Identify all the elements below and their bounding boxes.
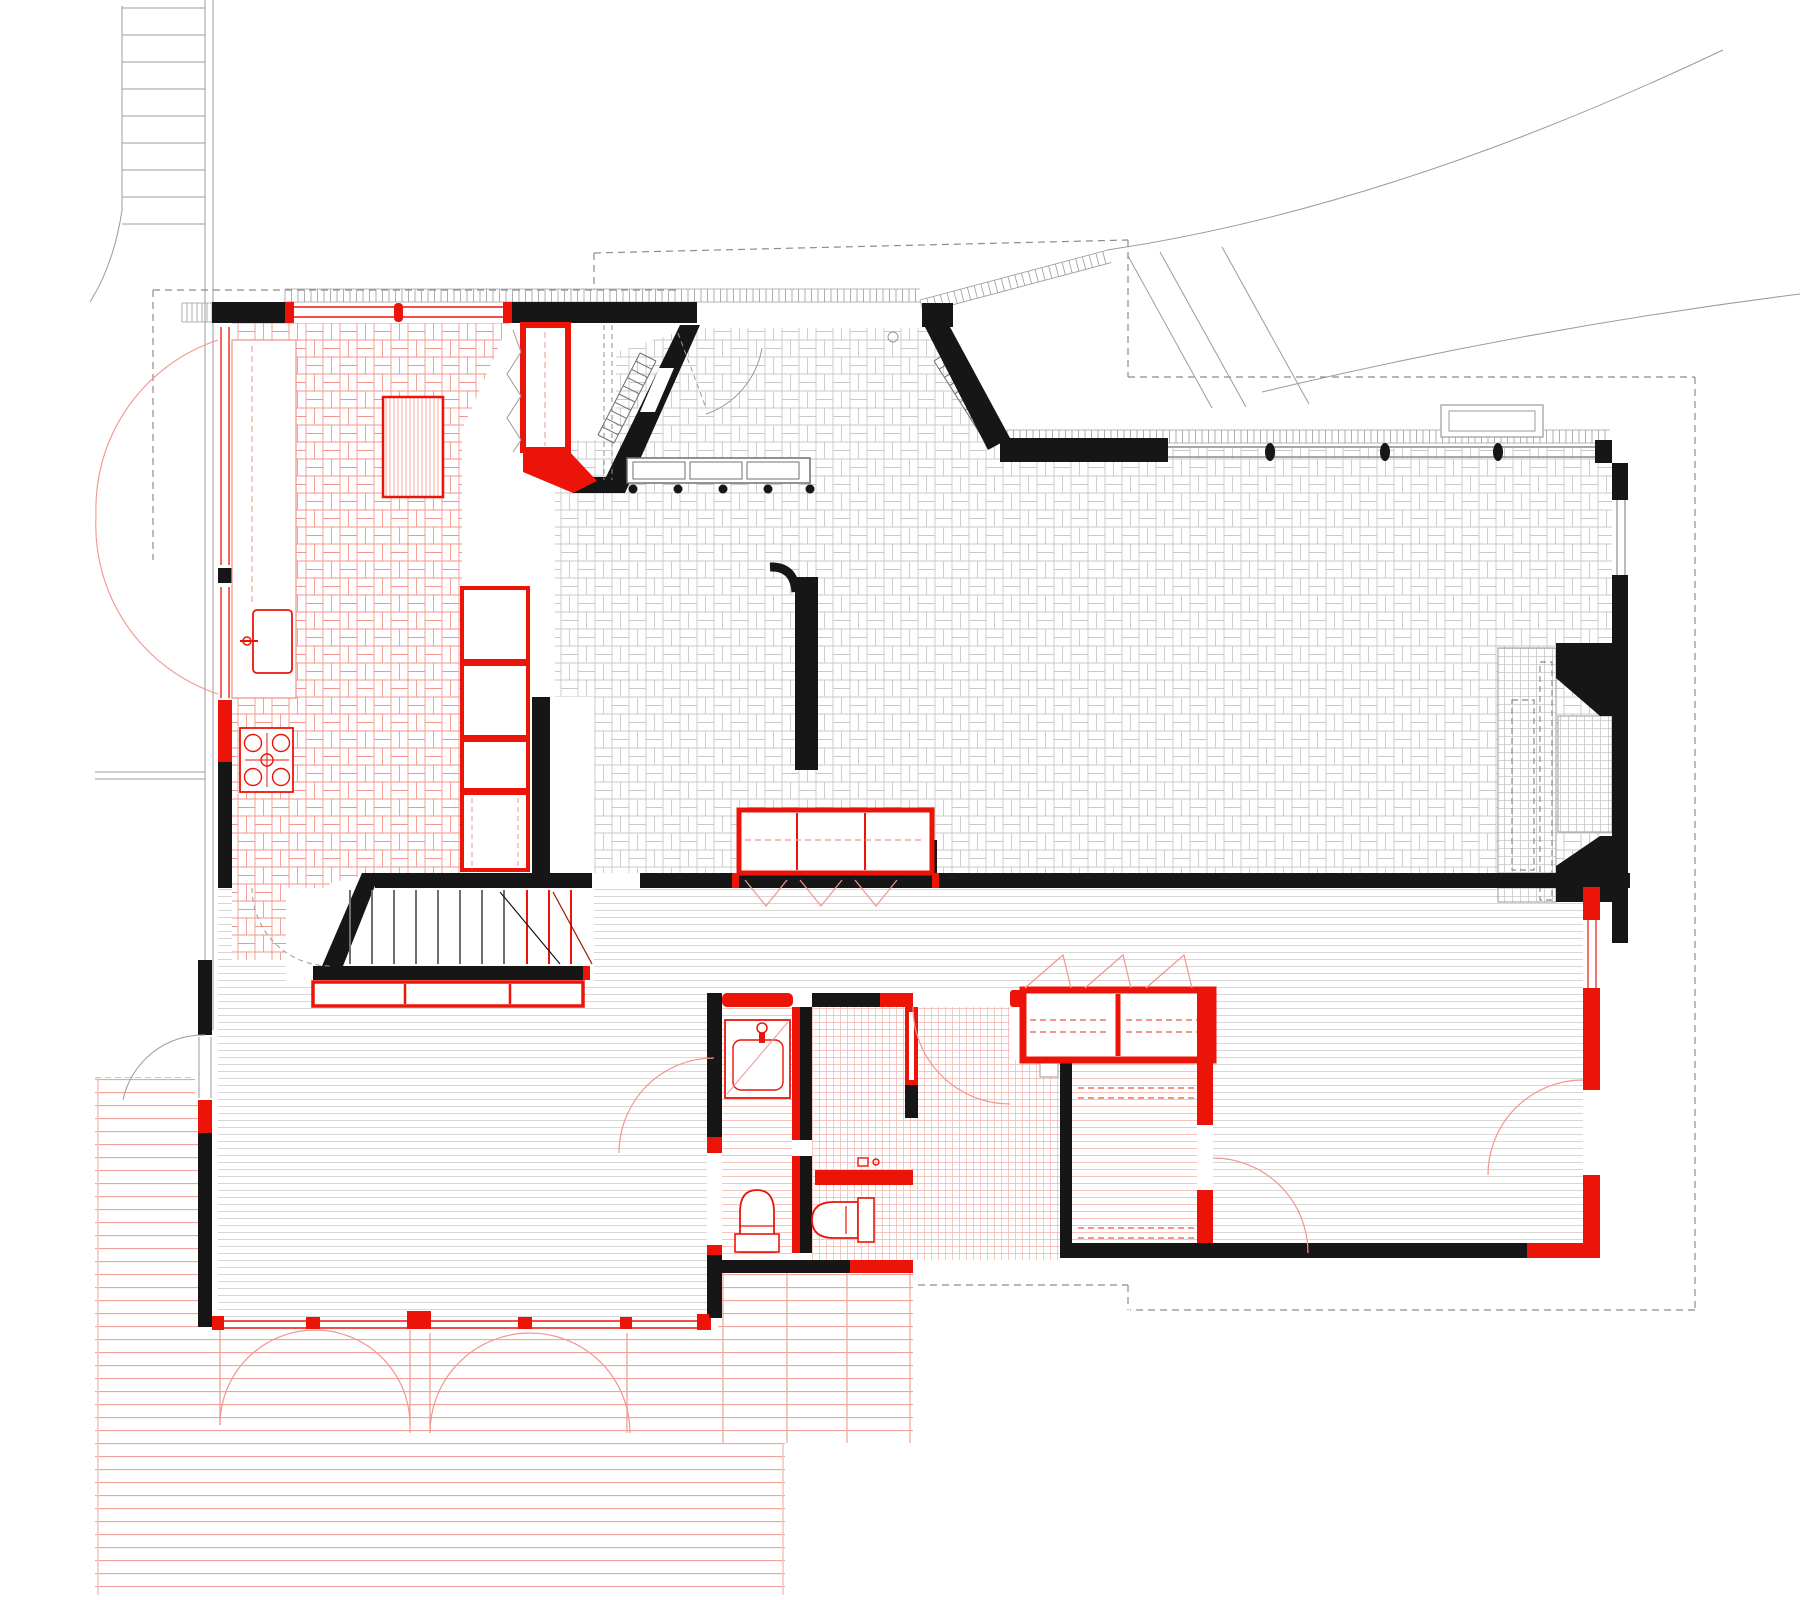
walkway-tick-band [1015, 275, 1018, 288]
kitchen-window-mullion [394, 303, 403, 322]
door-gap-mask [707, 1153, 722, 1245]
walkway-tick-band [1069, 260, 1072, 273]
wall-east-mid [1612, 575, 1628, 643]
kitchen-tall-cabinet [462, 664, 528, 737]
wall-bath-south [713, 1260, 850, 1273]
door-swing-red [96, 516, 218, 694]
deck-post [306, 1317, 320, 1329]
window-jamb-red [285, 302, 294, 323]
walkway-tick-band [1096, 253, 1099, 266]
wall-east-bedroom-red [1583, 887, 1600, 920]
entry-steps-ladder [602, 427, 618, 435]
wall-bedroom-south [1060, 1243, 1527, 1258]
kitchen-island [383, 397, 443, 497]
kitchen-tall-cabinet [462, 740, 528, 790]
walkway-tick-band [994, 280, 997, 293]
site-driveway-curve [1107, 50, 1723, 250]
deck-post [518, 1317, 532, 1329]
stair-bench [313, 982, 583, 1006]
hall-cabinet [739, 810, 932, 873]
wall-east-lower [1612, 643, 1628, 943]
wall-closet-east-red [1197, 990, 1213, 1125]
wall-bath-north [812, 993, 880, 1007]
wall-kitchen-divider [532, 697, 550, 873]
site-path-curve [90, 210, 122, 302]
wall-east-bedroom-red [1583, 1175, 1600, 1258]
wall-powder-west-red [707, 1245, 722, 1255]
site-path-line [1222, 247, 1309, 404]
walkway-tick-band [967, 287, 970, 300]
wall-west-lower [198, 960, 212, 1035]
wall-west-black [218, 568, 232, 583]
wall-bath-east [1060, 1057, 1072, 1257]
wall-bath-south-red [850, 1260, 913, 1273]
plan-layer [90, 0, 1800, 1595]
wall-west-lower-red [198, 1100, 212, 1133]
fireplace-flue-tiles [1558, 716, 1612, 832]
walkway-tick-band [1021, 273, 1024, 286]
walkway-tick-band [1028, 271, 1031, 284]
kitchen-tall-cabinet [462, 793, 528, 870]
wall-entry-corner [922, 303, 953, 327]
bath-vanity-shelf [815, 1170, 913, 1185]
walkway-tick-band [974, 286, 977, 299]
walkway-tick-band [920, 250, 1108, 300]
wall-living-south [375, 873, 592, 888]
wall-powder-west-red [707, 1137, 722, 1153]
floor-plan [0, 0, 1800, 1600]
powder-toilet-cistern [735, 1234, 779, 1252]
wall-west-black [218, 762, 232, 888]
bath-toilet [812, 1202, 858, 1238]
break-line [507, 330, 521, 452]
wall-bath-north-red [880, 993, 913, 1007]
bench-foot [674, 485, 683, 494]
wall-living-spine [795, 577, 818, 770]
walkway-tick-band [1042, 268, 1045, 281]
site-path-line [1128, 256, 1212, 408]
bath-toilet-cistern [858, 1198, 874, 1242]
site-path-line [1160, 252, 1246, 407]
walkway-tick-band [988, 282, 991, 295]
wing-window-mullion [1380, 443, 1390, 461]
deck-post [697, 1314, 709, 1330]
window-jamb-black [1595, 440, 1612, 463]
fireplace-hearth-tiles [1498, 648, 1556, 902]
wall-bath-divider [800, 1007, 812, 1253]
kitchen-tall-cabinet [462, 588, 528, 661]
wall-kitchen-north [503, 302, 697, 323]
wall-east-bedroom-red [1583, 988, 1600, 1090]
walkway-tick-band [1062, 262, 1065, 275]
bench-foot [764, 485, 773, 494]
wall-bath-divider-red [792, 1007, 800, 1253]
walkway-tick-band [1103, 251, 1106, 264]
walkway-tick-band [1076, 259, 1079, 272]
wing-window-mullion [1265, 443, 1275, 461]
powder-basin [733, 1040, 783, 1090]
corridor-mask [550, 697, 594, 873]
shower-screen-wall [905, 1085, 918, 1118]
bench-foot [629, 485, 638, 494]
wall-powder-west [707, 993, 722, 1137]
walkway-tick-band [1082, 257, 1085, 270]
floor-plan-canvas [0, 0, 1800, 1600]
walkway-tick-band [1089, 255, 1092, 268]
wing-window-mullion [1493, 443, 1503, 461]
door-gap-mask [1197, 1125, 1213, 1190]
walkway-tick-band [961, 289, 964, 302]
wall-west-red [218, 700, 232, 762]
walkway-tick-band [1008, 277, 1011, 290]
wall-red-cap [583, 966, 590, 980]
roofline-dashed [594, 240, 1128, 253]
walkway-tick-band [1035, 269, 1038, 282]
wall-wing-north [1000, 438, 1168, 462]
walkway-tick-band [981, 284, 984, 297]
wall-east-upper [1612, 463, 1628, 500]
wall-bath-divider-niche [792, 1140, 812, 1156]
floor-hall-boards [707, 888, 1583, 993]
shower-screen-glass [909, 1012, 914, 1080]
bench-foot [719, 485, 728, 494]
deck-post [407, 1311, 431, 1329]
deck-post [212, 1316, 224, 1330]
deck-post [620, 1317, 632, 1329]
door-gap-mask [195, 1030, 215, 1102]
skylight-outline [1441, 405, 1543, 437]
walkway-tick-band [954, 291, 957, 304]
door-gap-mask [913, 993, 1010, 1007]
walkway-tick-band [1001, 278, 1004, 291]
floor-bedroom-right-boards [1213, 993, 1583, 1243]
wall-stair-south [313, 966, 590, 980]
bench-foot [806, 485, 815, 494]
bath-tap [858, 1158, 868, 1166]
exterior-steps [718, 1273, 913, 1443]
door-swing-red [96, 340, 218, 516]
wall-kitchen-north [212, 302, 285, 323]
wall-west-lower [198, 1133, 212, 1327]
kitchen-sink [253, 610, 292, 673]
door-gap-mask [1583, 1090, 1600, 1175]
powder-faucet [759, 1033, 765, 1043]
walkway-tick-band [1055, 264, 1058, 277]
walkway-tick-band [1049, 266, 1052, 279]
wall-bedroom-south-red [1527, 1243, 1589, 1258]
window-jamb-red [503, 302, 512, 323]
wall-powder-north-red [722, 993, 793, 1007]
